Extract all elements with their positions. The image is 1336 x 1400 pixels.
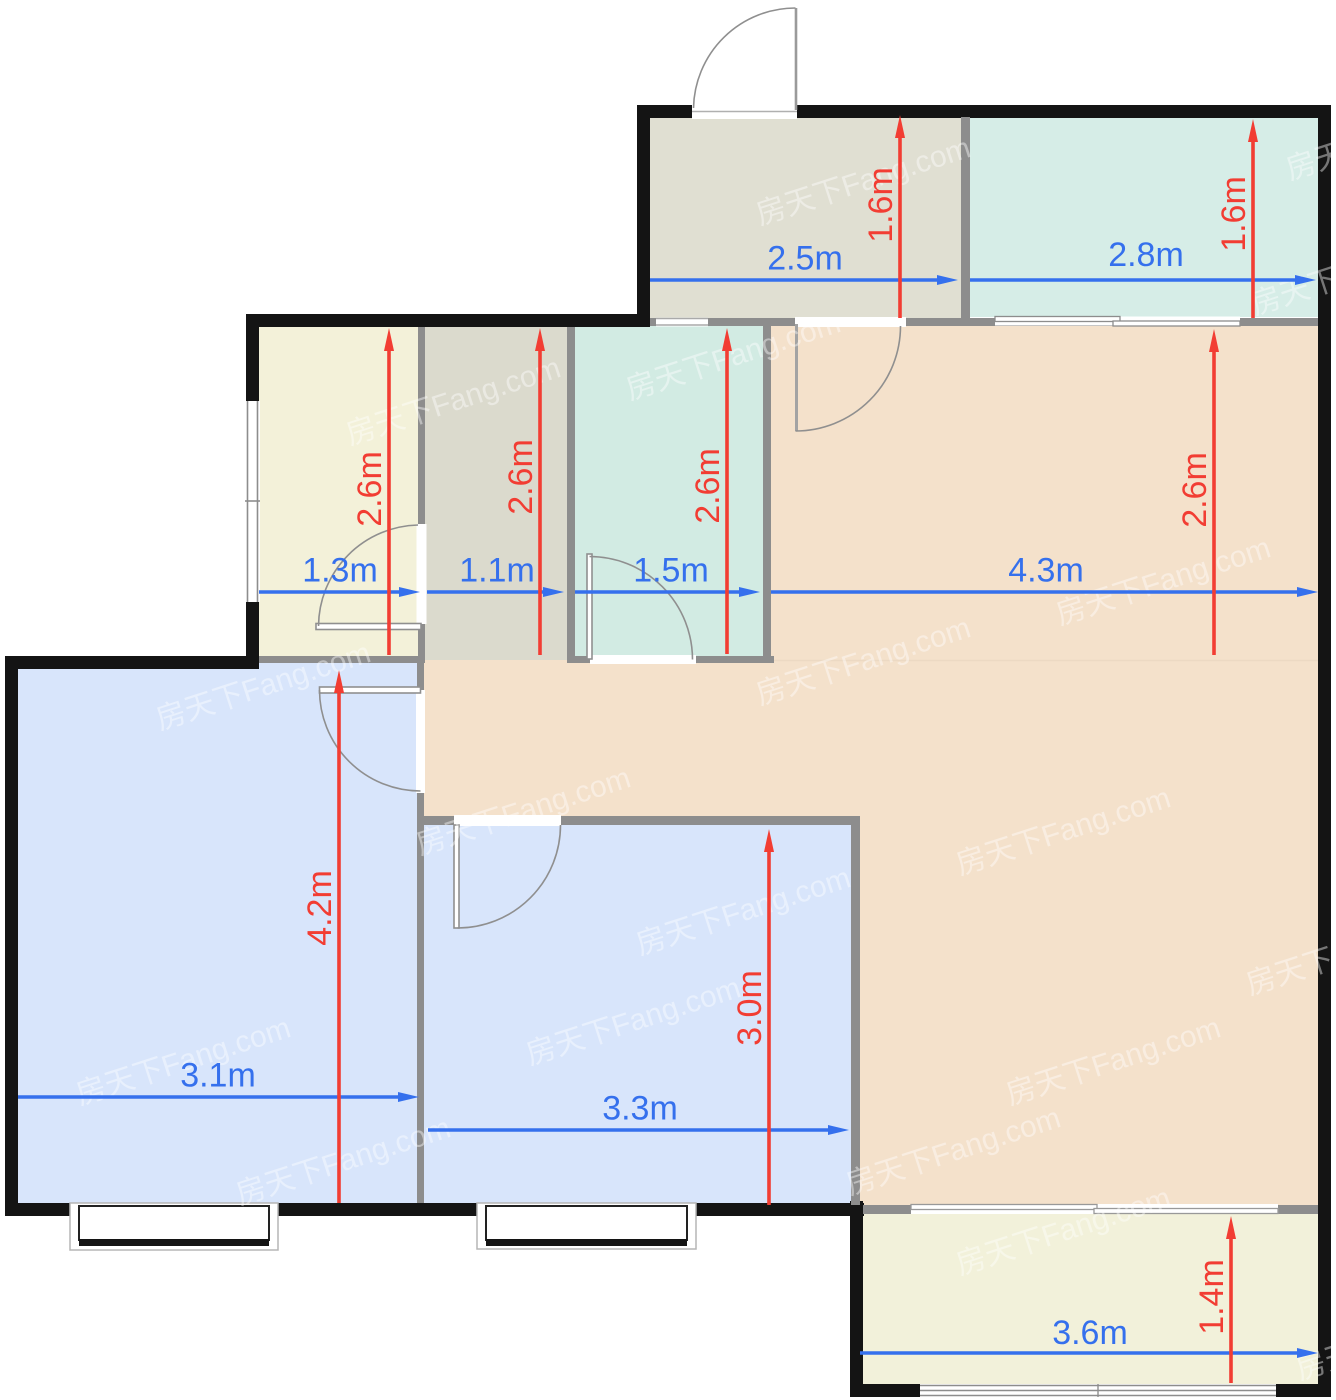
svg-text:2.6m: 2.6m xyxy=(1176,452,1214,528)
svg-text:2.5m: 2.5m xyxy=(767,240,843,278)
svg-text:3.1m: 3.1m xyxy=(180,1057,256,1095)
svg-text:1.6m: 1.6m xyxy=(862,167,900,243)
svg-text:4.3m: 4.3m xyxy=(1008,552,1084,590)
svg-text:2.6m: 2.6m xyxy=(689,448,727,524)
svg-text:1.1m: 1.1m xyxy=(459,552,535,590)
svg-text:3.0m: 3.0m xyxy=(731,970,769,1046)
svg-text:3.3m: 3.3m xyxy=(602,1090,678,1128)
svg-text:1.3m: 1.3m xyxy=(302,552,378,590)
svg-text:1.6m: 1.6m xyxy=(1215,176,1253,252)
svg-text:2.6m: 2.6m xyxy=(502,439,540,515)
svg-text:3.6m: 3.6m xyxy=(1052,1314,1128,1352)
svg-text:1.4m: 1.4m xyxy=(1193,1259,1231,1335)
svg-text:2.8m: 2.8m xyxy=(1108,236,1184,274)
svg-text:4.2m: 4.2m xyxy=(301,870,339,946)
svg-text:1.5m: 1.5m xyxy=(633,552,709,590)
svg-text:2.6m: 2.6m xyxy=(351,451,389,527)
